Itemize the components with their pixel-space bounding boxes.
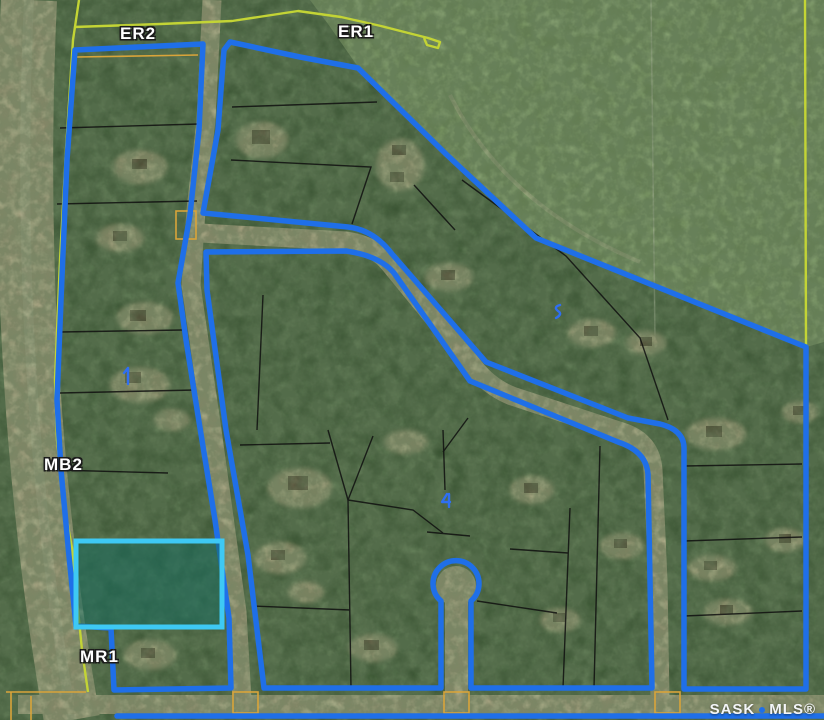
zone-label-mr1: MR1 bbox=[80, 648, 119, 665]
aerial-basemap bbox=[0, 0, 824, 720]
watermark-brand-left: SASK bbox=[710, 701, 756, 718]
dot-icon bbox=[759, 707, 765, 713]
zone-label-mb2: MB2 bbox=[44, 456, 83, 473]
watermark-brand-right: MLS® bbox=[769, 701, 816, 718]
mls-aerial-map: ER2 ER1 MB2 MR1 SASK MLS® bbox=[0, 0, 824, 720]
zone-label-er1: ER1 bbox=[338, 23, 374, 40]
mls-watermark: SASK MLS® bbox=[710, 701, 816, 718]
highlighted-parcel bbox=[76, 541, 222, 627]
zone-label-er2: ER2 bbox=[120, 25, 156, 42]
